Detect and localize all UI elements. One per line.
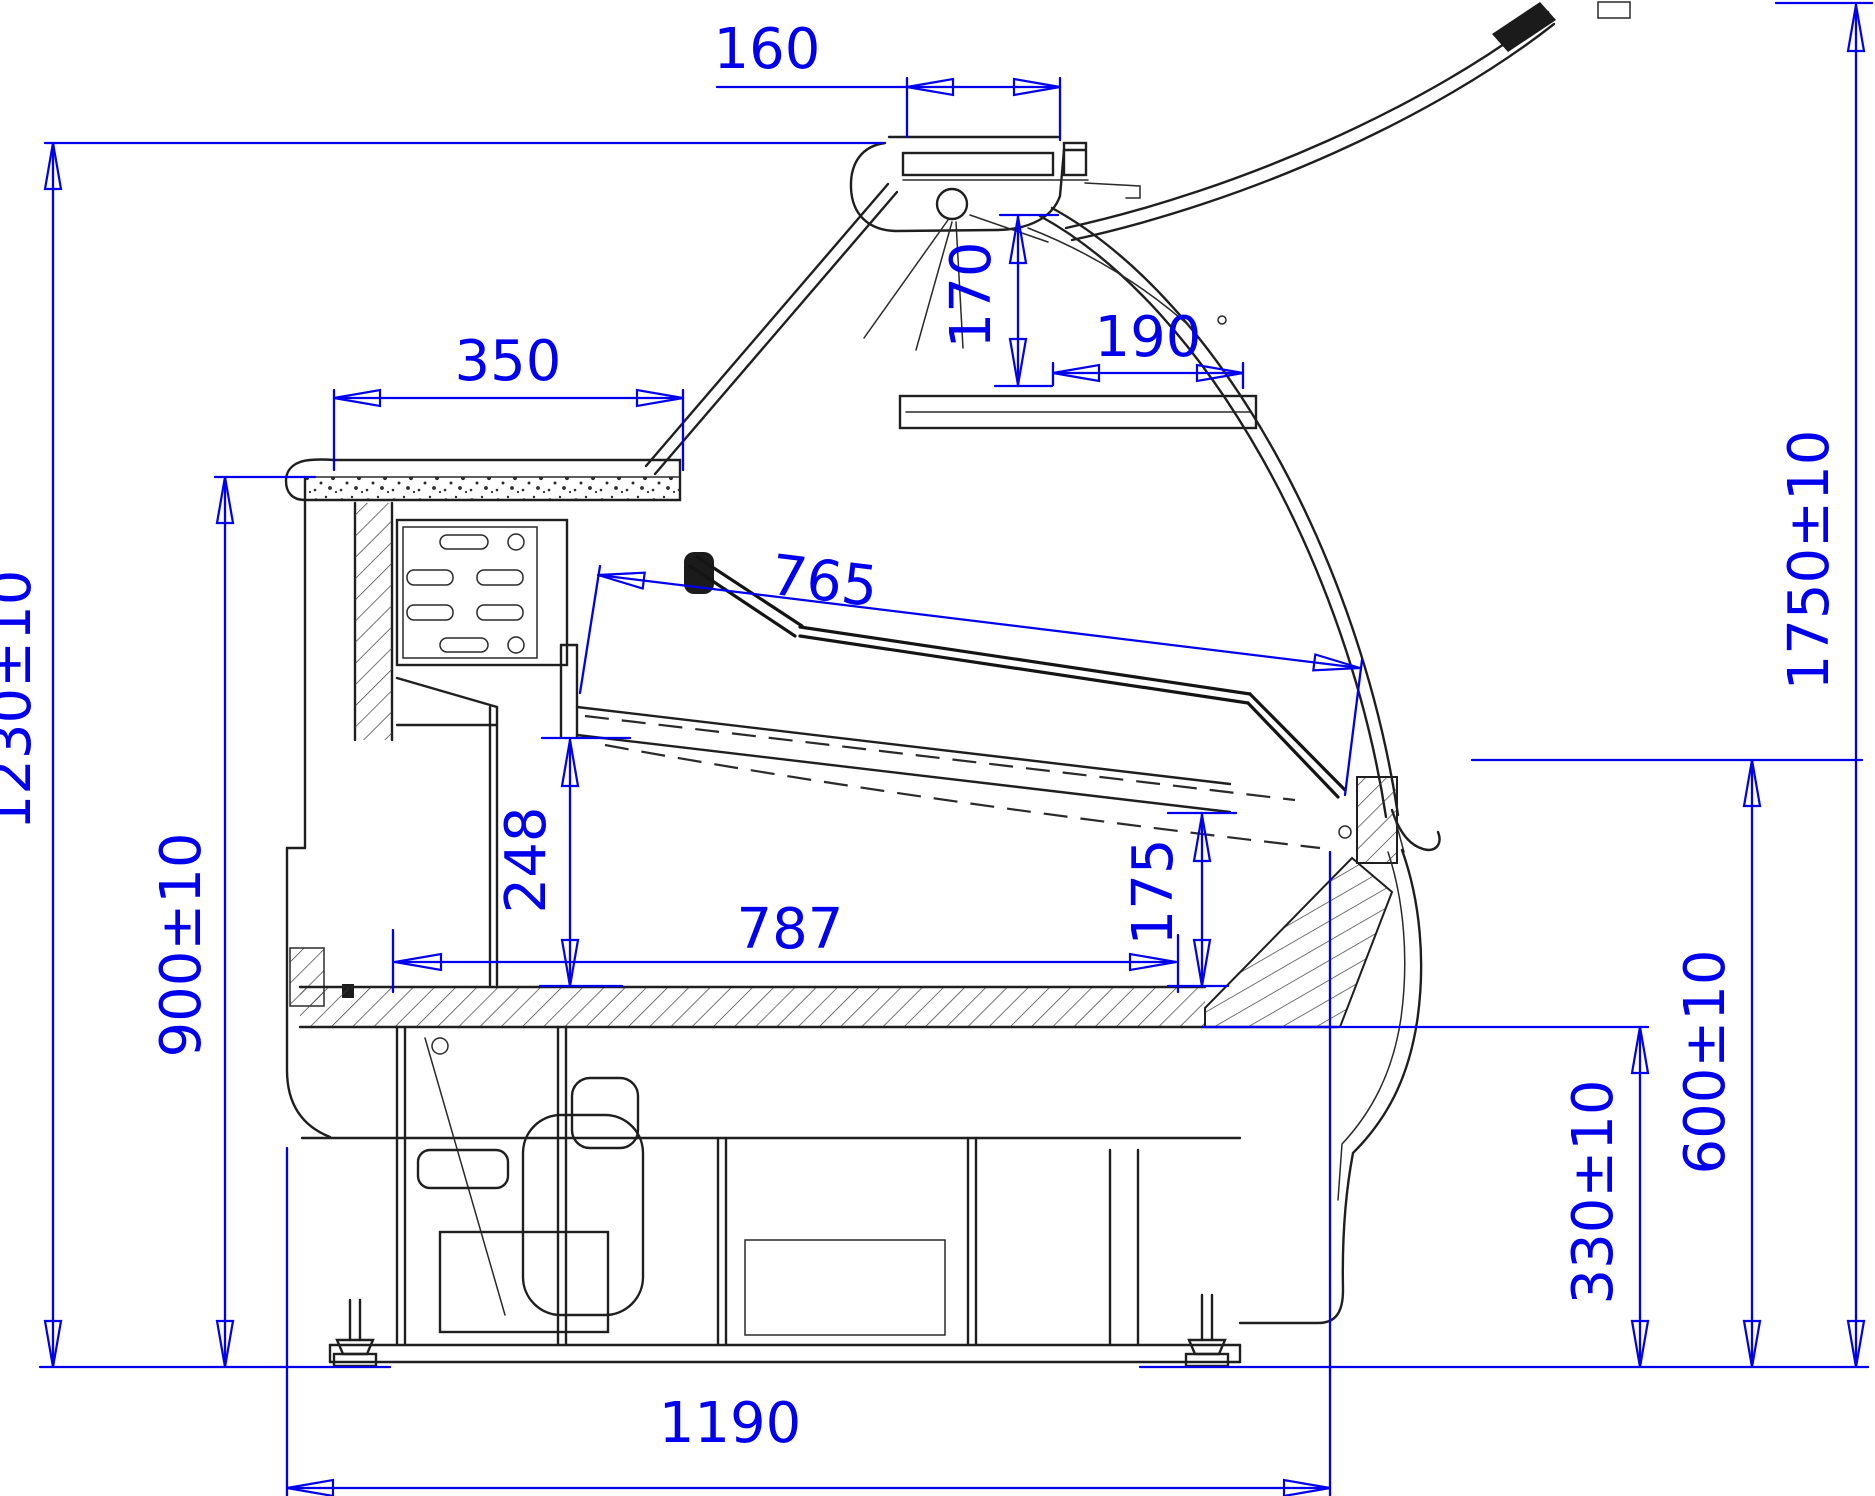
dim-label-170: 170 bbox=[939, 242, 1004, 349]
foot-right bbox=[1186, 1295, 1228, 1366]
glass-handle bbox=[1392, 810, 1440, 850]
dim-label-1190: 1190 bbox=[659, 1391, 802, 1456]
dimension-900: 900±10 bbox=[149, 477, 315, 1367]
dim-label-248: 248 bbox=[494, 807, 559, 914]
dim-label-1230: 1230±10 bbox=[0, 570, 44, 831]
drawing-canvas: 1230±10 900±10 160 170 bbox=[0, 0, 1875, 1496]
dim-label-1750: 1750±10 bbox=[1777, 430, 1842, 691]
open-glass-handle bbox=[1492, 2, 1556, 52]
dim-label-330: 330±10 bbox=[1561, 1079, 1626, 1304]
canopy-lamp bbox=[903, 153, 1053, 175]
dimension-160: 160 bbox=[714, 17, 1060, 140]
front-glass-open bbox=[1066, 2, 1630, 240]
dimension-1750: 1750±10 bbox=[1776, 3, 1872, 1367]
base-frame bbox=[302, 1027, 1240, 1362]
section-drawing: 1230±10 900±10 160 170 bbox=[0, 0, 1875, 1496]
well bbox=[300, 645, 1338, 1027]
dim-label-787: 787 bbox=[737, 897, 844, 962]
canopy-bracket bbox=[1064, 143, 1086, 175]
compressor bbox=[418, 1078, 945, 1335]
dim-label-765: 765 bbox=[767, 543, 881, 621]
rear-wall bbox=[287, 478, 392, 1137]
dimension-330: 330±10 bbox=[1203, 1027, 1648, 1367]
dimension-248: 248 bbox=[494, 738, 630, 986]
dim-label-175: 175 bbox=[1121, 839, 1186, 946]
dim-label-600: 600±10 bbox=[1673, 949, 1738, 1174]
foot-left bbox=[334, 1300, 376, 1366]
dim-label-900: 900±10 bbox=[149, 832, 214, 1057]
canopy-hinge bbox=[937, 189, 967, 219]
dim-label-160: 160 bbox=[714, 17, 821, 82]
dimension-350: 350 bbox=[334, 329, 683, 470]
dimension-600: 600±10 bbox=[1472, 760, 1862, 1367]
dim-label-350: 350 bbox=[455, 329, 562, 394]
dim-label-190: 190 bbox=[1095, 305, 1202, 370]
dimension-190: 190 bbox=[1053, 305, 1243, 388]
front-panel bbox=[1205, 777, 1421, 1323]
counter-linework bbox=[286, 2, 1630, 1366]
front-glass-closed bbox=[1028, 208, 1440, 850]
front-insulation-wedge bbox=[1205, 858, 1392, 1027]
vent-grille bbox=[397, 520, 567, 985]
